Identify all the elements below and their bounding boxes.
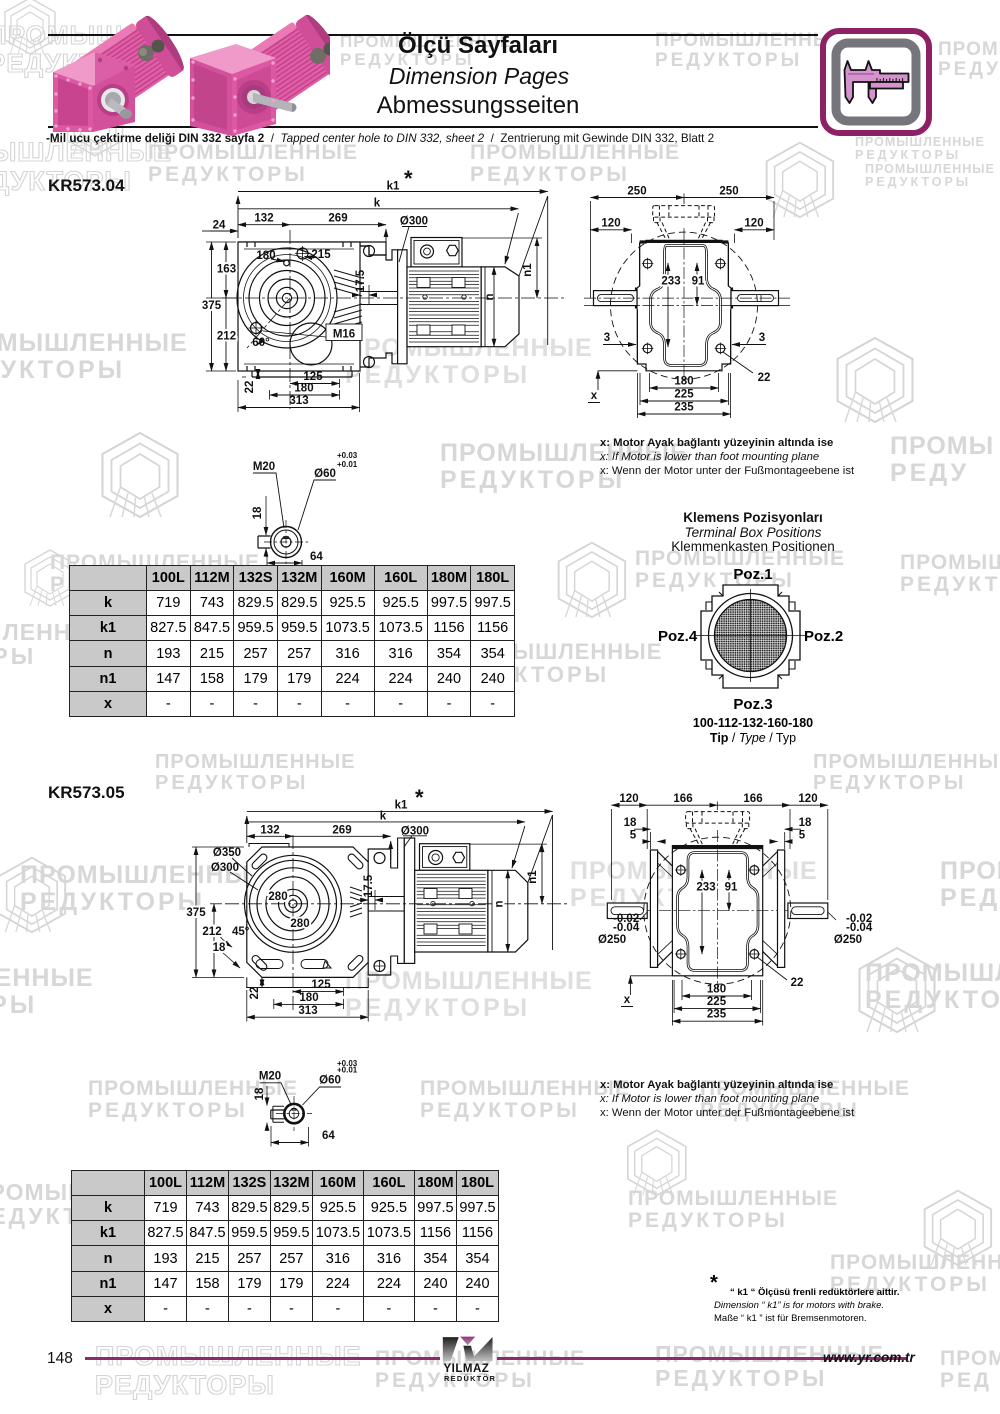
- svg-text:+0.01: +0.01: [337, 1065, 358, 1074]
- svg-text:18: 18: [254, 1087, 266, 1100]
- svg-text:M20: M20: [259, 1071, 281, 1083]
- svg-text:Ø60: Ø60: [319, 1075, 341, 1087]
- svg-text:64: 64: [322, 1130, 335, 1142]
